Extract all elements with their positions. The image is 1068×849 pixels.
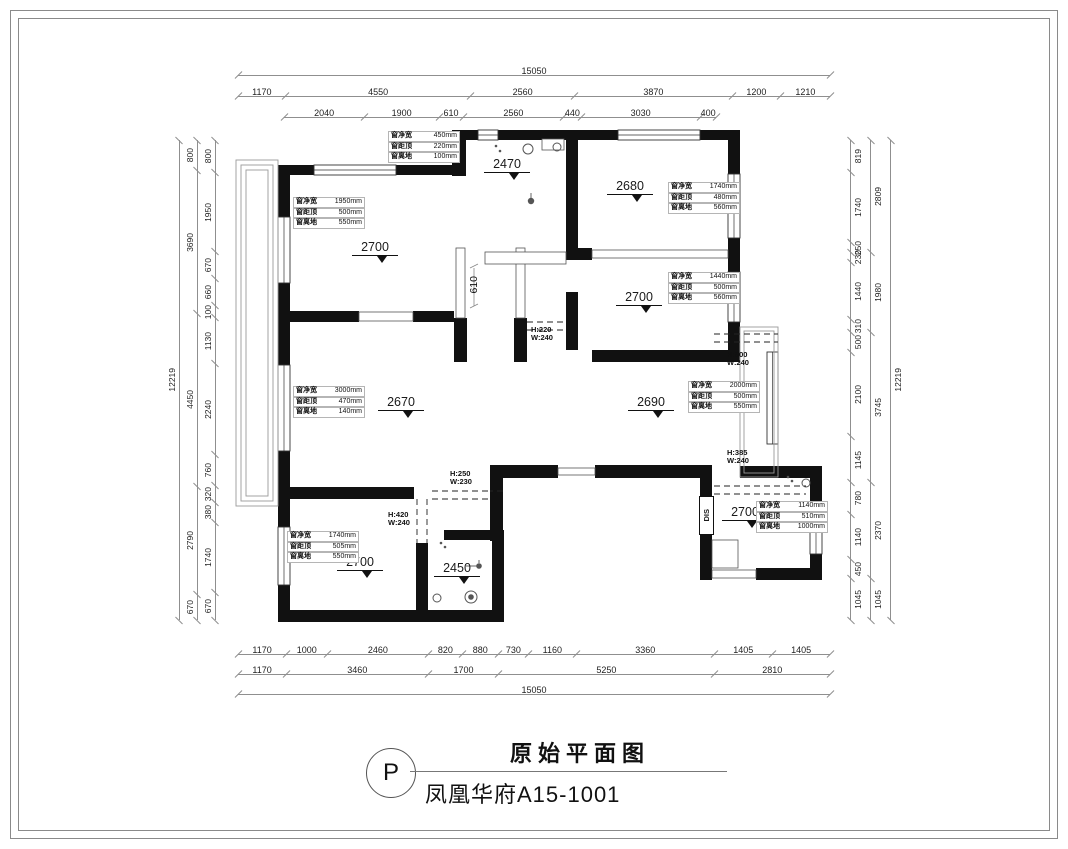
level-triangle-icon <box>362 571 372 578</box>
dim-segment: 15050 <box>238 62 830 76</box>
dim-segment: 3690 <box>183 171 198 314</box>
dim-segment: 1405 <box>714 641 772 655</box>
dim-segment: 1200 <box>732 83 781 97</box>
dim-chain-right-total: 12219 <box>890 140 905 620</box>
level-triangle-icon <box>641 306 651 313</box>
level-marker: 2690 <box>628 396 674 418</box>
dim-segment: 2809 <box>870 140 885 253</box>
dim-segment: 670 <box>201 593 216 620</box>
drawing-title: 原始平面图 <box>432 736 728 768</box>
dim-segment: 3870 <box>575 83 732 97</box>
level-triangle-icon <box>403 411 413 418</box>
dim-segment: 1130 <box>201 318 216 364</box>
dim-segment: 2790 <box>183 486 198 594</box>
dim-segment: 2460 <box>327 641 428 655</box>
dim-segment: 2560 <box>471 83 575 97</box>
dim-segment: 1950 <box>201 172 216 251</box>
dim-segment: 1210 <box>781 83 830 97</box>
level-triangle-icon <box>632 195 642 202</box>
drawing-sheet: 15050 1170 4550 2560 3870 1200 1210 2040… <box>0 0 1068 849</box>
dim-segment: 440 <box>564 104 581 118</box>
dim-segment: 730 <box>498 641 528 655</box>
hall-dimension-label: 610 <box>468 276 480 294</box>
dim-chain-bottom-minor: 1170 1000 2460 820 880 730 1160 3360 140… <box>238 641 830 655</box>
dim-segment: 400 <box>700 104 716 118</box>
dim-segment: 4450 <box>183 314 198 486</box>
dim-segment: 1440 <box>850 262 865 320</box>
dim-segment: 1980 <box>870 253 885 333</box>
dim-segment: 310 <box>850 320 865 332</box>
dim-segment: 660 <box>201 279 216 306</box>
level-marker: 2700 <box>616 291 662 313</box>
dim-segment: 1405 <box>772 641 830 655</box>
dim-segment: 1740 <box>850 173 865 243</box>
dim-segment: 800 <box>183 140 198 171</box>
dim-segment: 819 <box>850 140 865 173</box>
beam-annotation: H:385W:240 <box>727 449 749 465</box>
window-annotation: 窗净宽450mm 窗距顶220mm 窗离地100mm <box>388 131 460 163</box>
level-marker: 2450 <box>434 562 480 584</box>
beam-annotation: H:250W:230 <box>450 470 472 486</box>
dim-segment: 3360 <box>576 641 714 655</box>
shaft-label: DIS <box>699 496 714 535</box>
drawing-subtitle: 凤凰华府A15-1001 <box>425 777 620 809</box>
dim-segment: 12219 <box>165 140 180 620</box>
dim-chain-bottom-major: 1170 3460 1700 5250 2810 <box>238 661 830 675</box>
dim-segment: 880 <box>462 641 498 655</box>
dim-segment: 1170 <box>238 661 286 675</box>
dim-segment: 12219 <box>890 140 905 620</box>
level-triangle-icon <box>509 173 519 180</box>
dim-segment: 2810 <box>714 661 830 675</box>
dim-segment: 450 <box>850 560 865 578</box>
dim-segment: 5250 <box>498 661 714 675</box>
dim-chain-top-minor: 2040 1900 610 2560 440 3030 400 <box>284 104 716 118</box>
window-annotation: 窗净宽3000mm 窗距顶470mm 窗离地140mm <box>293 386 365 418</box>
dim-segment: 1900 <box>364 104 439 118</box>
dim-segment: 670 <box>201 252 216 279</box>
dim-segment: 1170 <box>238 83 286 97</box>
dim-segment: 3745 <box>870 332 885 482</box>
dim-chain-right-minor: 819 1740 250 230 1440 310 500 2100 1145 … <box>850 140 865 620</box>
dim-chain-bottom-total: 15050 <box>238 681 830 695</box>
dim-segment: 2560 <box>463 104 564 118</box>
dim-segment: 800 <box>201 140 216 172</box>
level-marker: 2700 <box>352 241 398 263</box>
dim-chain-top-total: 15050 <box>238 62 830 76</box>
dim-chain-top-major: 1170 4550 2560 3870 1200 1210 <box>238 83 830 97</box>
dim-segment: 1140 <box>850 514 865 560</box>
dim-segment: 230 <box>850 253 865 262</box>
dim-segment: 380 <box>201 503 216 523</box>
dim-segment: 1160 <box>528 641 576 655</box>
dim-segment: 1170 <box>238 641 286 655</box>
dim-segment: 500 <box>850 332 865 352</box>
dim-chain-left-minor: 800 1950 670 660 100 1130 2240 760 320 3… <box>201 140 216 620</box>
dim-segment: 670 <box>183 594 198 620</box>
dim-segment: 780 <box>850 483 865 514</box>
dim-segment: 1000 <box>286 641 327 655</box>
window-annotation: 窗净宽1950mm 窗距顶500mm 窗离地550mm <box>293 197 365 229</box>
title-divider <box>410 771 727 772</box>
dim-segment: 2100 <box>850 352 865 436</box>
beam-annotation: H:220W:240 <box>531 326 553 342</box>
dim-chain-left-total: 12219 <box>165 140 180 620</box>
window-annotation: 窗净宽2000mm 窗距顶500mm 窗离地550mm <box>688 381 760 413</box>
level-triangle-icon <box>653 411 663 418</box>
level-marker: 2680 <box>607 180 653 202</box>
window-annotation: 窗净宽1740mm 窗距顶480mm 窗离地560mm <box>668 182 740 214</box>
dim-segment: 820 <box>428 641 462 655</box>
window-annotation: 窗净宽1140mm 窗距顶510mm 窗离地1000mm <box>756 501 828 533</box>
dim-segment: 1700 <box>428 661 498 675</box>
dim-segment: 2040 <box>284 104 364 118</box>
dim-segment: 2370 <box>870 483 885 578</box>
dim-segment: 1145 <box>850 437 865 483</box>
window-annotation: 窗净宽1740mm 窗距顶505mm 窗离地550mm <box>287 531 359 563</box>
dim-chain-right-major: 2809 1980 3745 2370 1045 <box>870 140 885 620</box>
title-stamp-circle: P <box>366 748 416 798</box>
dim-segment: 4550 <box>286 83 471 97</box>
dim-segment: 1740 <box>201 522 216 593</box>
dim-segment: 1045 <box>850 578 865 620</box>
dim-segment: 2240 <box>201 364 216 455</box>
dim-segment: 3460 <box>286 661 428 675</box>
level-triangle-icon <box>459 577 469 584</box>
dim-segment: 760 <box>201 455 216 486</box>
beam-annotation: H:500W:240 <box>727 351 749 367</box>
level-marker: 2670 <box>378 396 424 418</box>
dim-chain-left-major: 800 3690 4450 2790 670 <box>183 140 198 620</box>
window-annotation: 窗净宽1440mm 窗距顶500mm 窗离地560mm <box>668 272 740 304</box>
dim-segment: 610 <box>439 104 463 118</box>
level-triangle-icon <box>377 256 387 263</box>
floor-plan-drawing <box>0 0 1068 849</box>
level-marker: 2470 <box>484 158 530 180</box>
beam-annotation: H:420W:240 <box>388 511 410 527</box>
dim-segment: 3030 <box>581 104 700 118</box>
dim-segment: 15050 <box>238 681 830 695</box>
dim-segment: 1045 <box>870 578 885 620</box>
